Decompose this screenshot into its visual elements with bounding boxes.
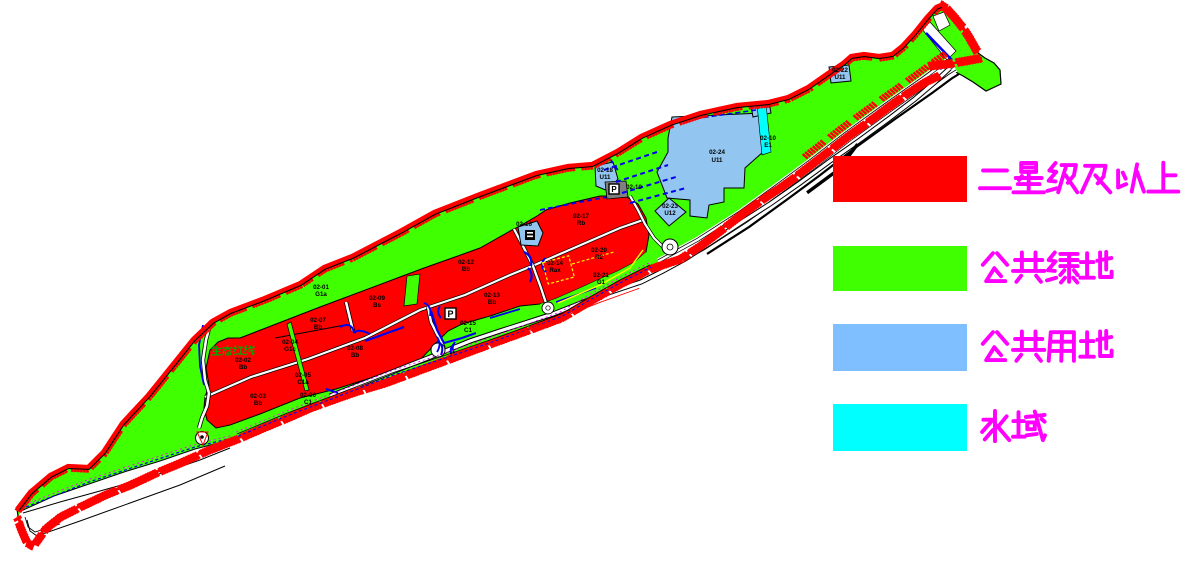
svg-text:02-18: 02-18 xyxy=(597,167,613,174)
svg-text:E1: E1 xyxy=(764,142,772,149)
svg-text:02-15: 02-15 xyxy=(460,320,476,327)
svg-text:02-09: 02-09 xyxy=(369,295,385,302)
svg-text:Bb: Bb xyxy=(239,364,247,371)
svg-text:02-17: 02-17 xyxy=(573,213,589,220)
svg-text:Rb: Rb xyxy=(577,220,585,227)
svg-text:G1a: G1a xyxy=(315,291,327,298)
svg-text:02-20: 02-20 xyxy=(591,247,607,254)
svg-text:02-21: 02-21 xyxy=(593,272,609,279)
svg-text:02-24: 02-24 xyxy=(709,149,725,156)
svg-text:U11: U11 xyxy=(834,74,846,81)
svg-text:02-04: 02-04 xyxy=(282,339,298,346)
svg-text:C1a: C1a xyxy=(297,379,309,386)
svg-text:02-01: 02-01 xyxy=(313,284,329,291)
svg-text:C1: C1 xyxy=(304,399,312,406)
svg-text:02-05: 02-05 xyxy=(295,372,311,379)
svg-text:02-16: 02-16 xyxy=(516,221,532,228)
svg-text:02-19: 02-19 xyxy=(626,184,642,191)
svg-text:02-22: 02-22 xyxy=(832,67,848,74)
svg-text:Bb: Bb xyxy=(314,324,322,331)
svg-text:C1: C1 xyxy=(464,327,472,334)
svg-text:G1: G1 xyxy=(597,279,606,286)
svg-text:Bb: Bb xyxy=(254,400,262,407)
svg-text:02-06: 02-06 xyxy=(300,392,316,399)
svg-text:Bs: Bs xyxy=(373,302,381,309)
svg-text:02-08: 02-08 xyxy=(347,345,363,352)
svg-text:02-14: 02-14 xyxy=(547,260,563,267)
svg-text:U12: U12 xyxy=(664,210,676,217)
svg-text:Bb: Bb xyxy=(462,266,470,273)
svg-text:P: P xyxy=(611,185,617,194)
svg-text:U11: U11 xyxy=(599,174,611,181)
svg-text:U11: U11 xyxy=(711,157,723,164)
svg-text:G1c: G1c xyxy=(284,346,296,353)
svg-text:02-23: 02-23 xyxy=(662,203,678,210)
svg-text:02-03: 02-03 xyxy=(250,393,266,400)
svg-text:Bb: Bb xyxy=(351,352,359,359)
svg-text:R2: R2 xyxy=(595,254,603,261)
svg-text:02-10: 02-10 xyxy=(760,135,776,142)
svg-text:P: P xyxy=(447,309,453,319)
svg-text:Bb: Bb xyxy=(488,299,496,306)
svg-text:Rax: Rax xyxy=(549,267,561,274)
svg-text:02-13: 02-13 xyxy=(484,292,500,299)
svg-text:02-07: 02-07 xyxy=(310,317,326,324)
svg-text:02-02: 02-02 xyxy=(235,357,251,364)
svg-text:02-12: 02-12 xyxy=(458,259,474,266)
